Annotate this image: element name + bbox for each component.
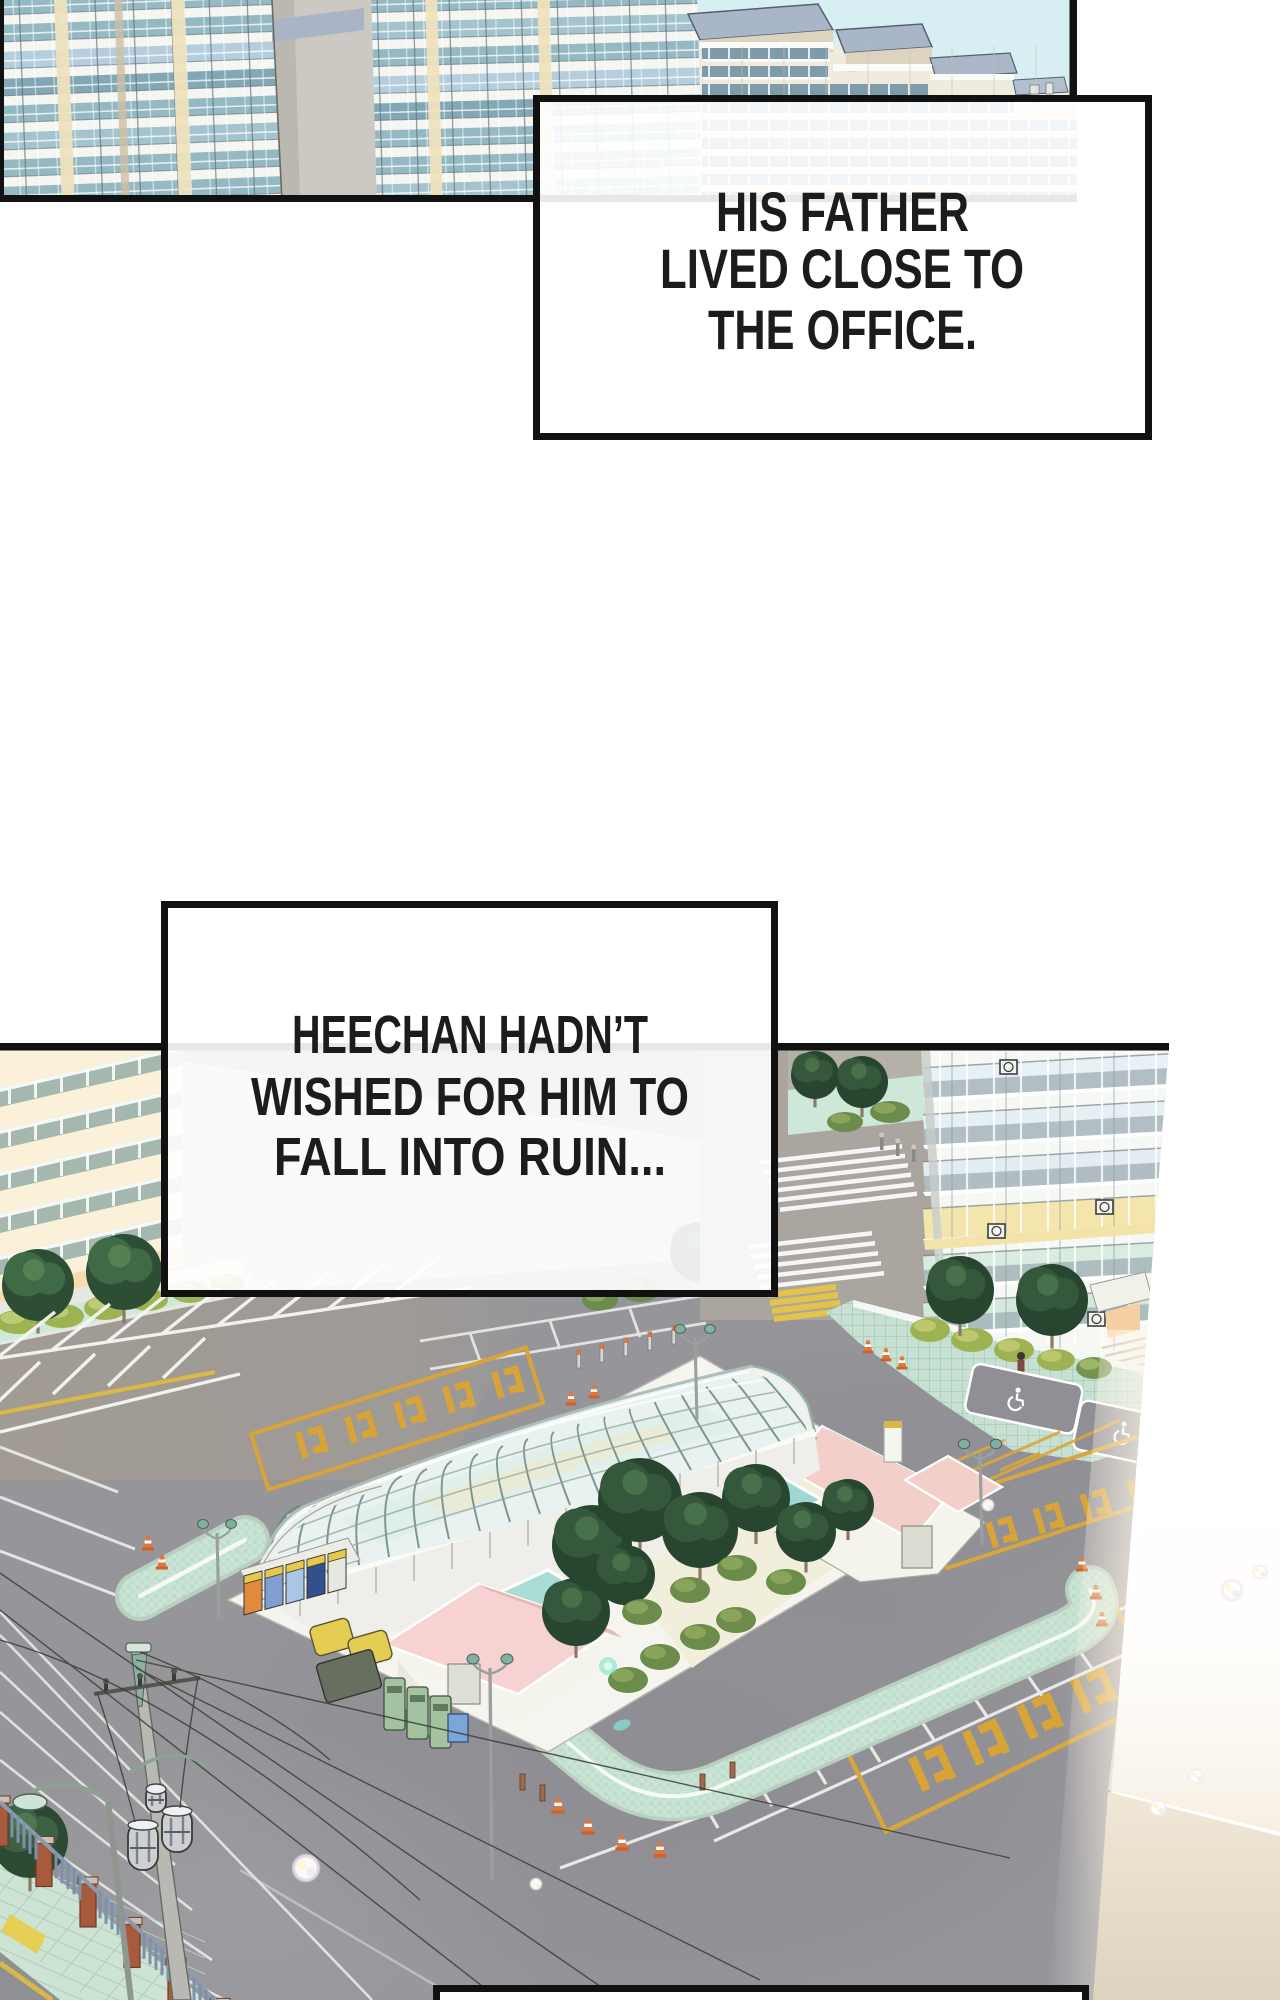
svg-text:HEECHAN HADN’T: HEECHAN HADN’T (292, 1005, 648, 1065)
svg-text:FALL INTO RUIN...: FALL INTO RUIN... (274, 1127, 666, 1187)
svg-text:THE OFFICE.: THE OFFICE. (708, 298, 977, 361)
svg-text:HIS FATHER: HIS FATHER (716, 180, 969, 243)
svg-text:WISHED FOR HIM TO: WISHED FOR HIM TO (251, 1067, 689, 1127)
svg-text:LIVED CLOSE TO: LIVED CLOSE TO (660, 237, 1024, 300)
